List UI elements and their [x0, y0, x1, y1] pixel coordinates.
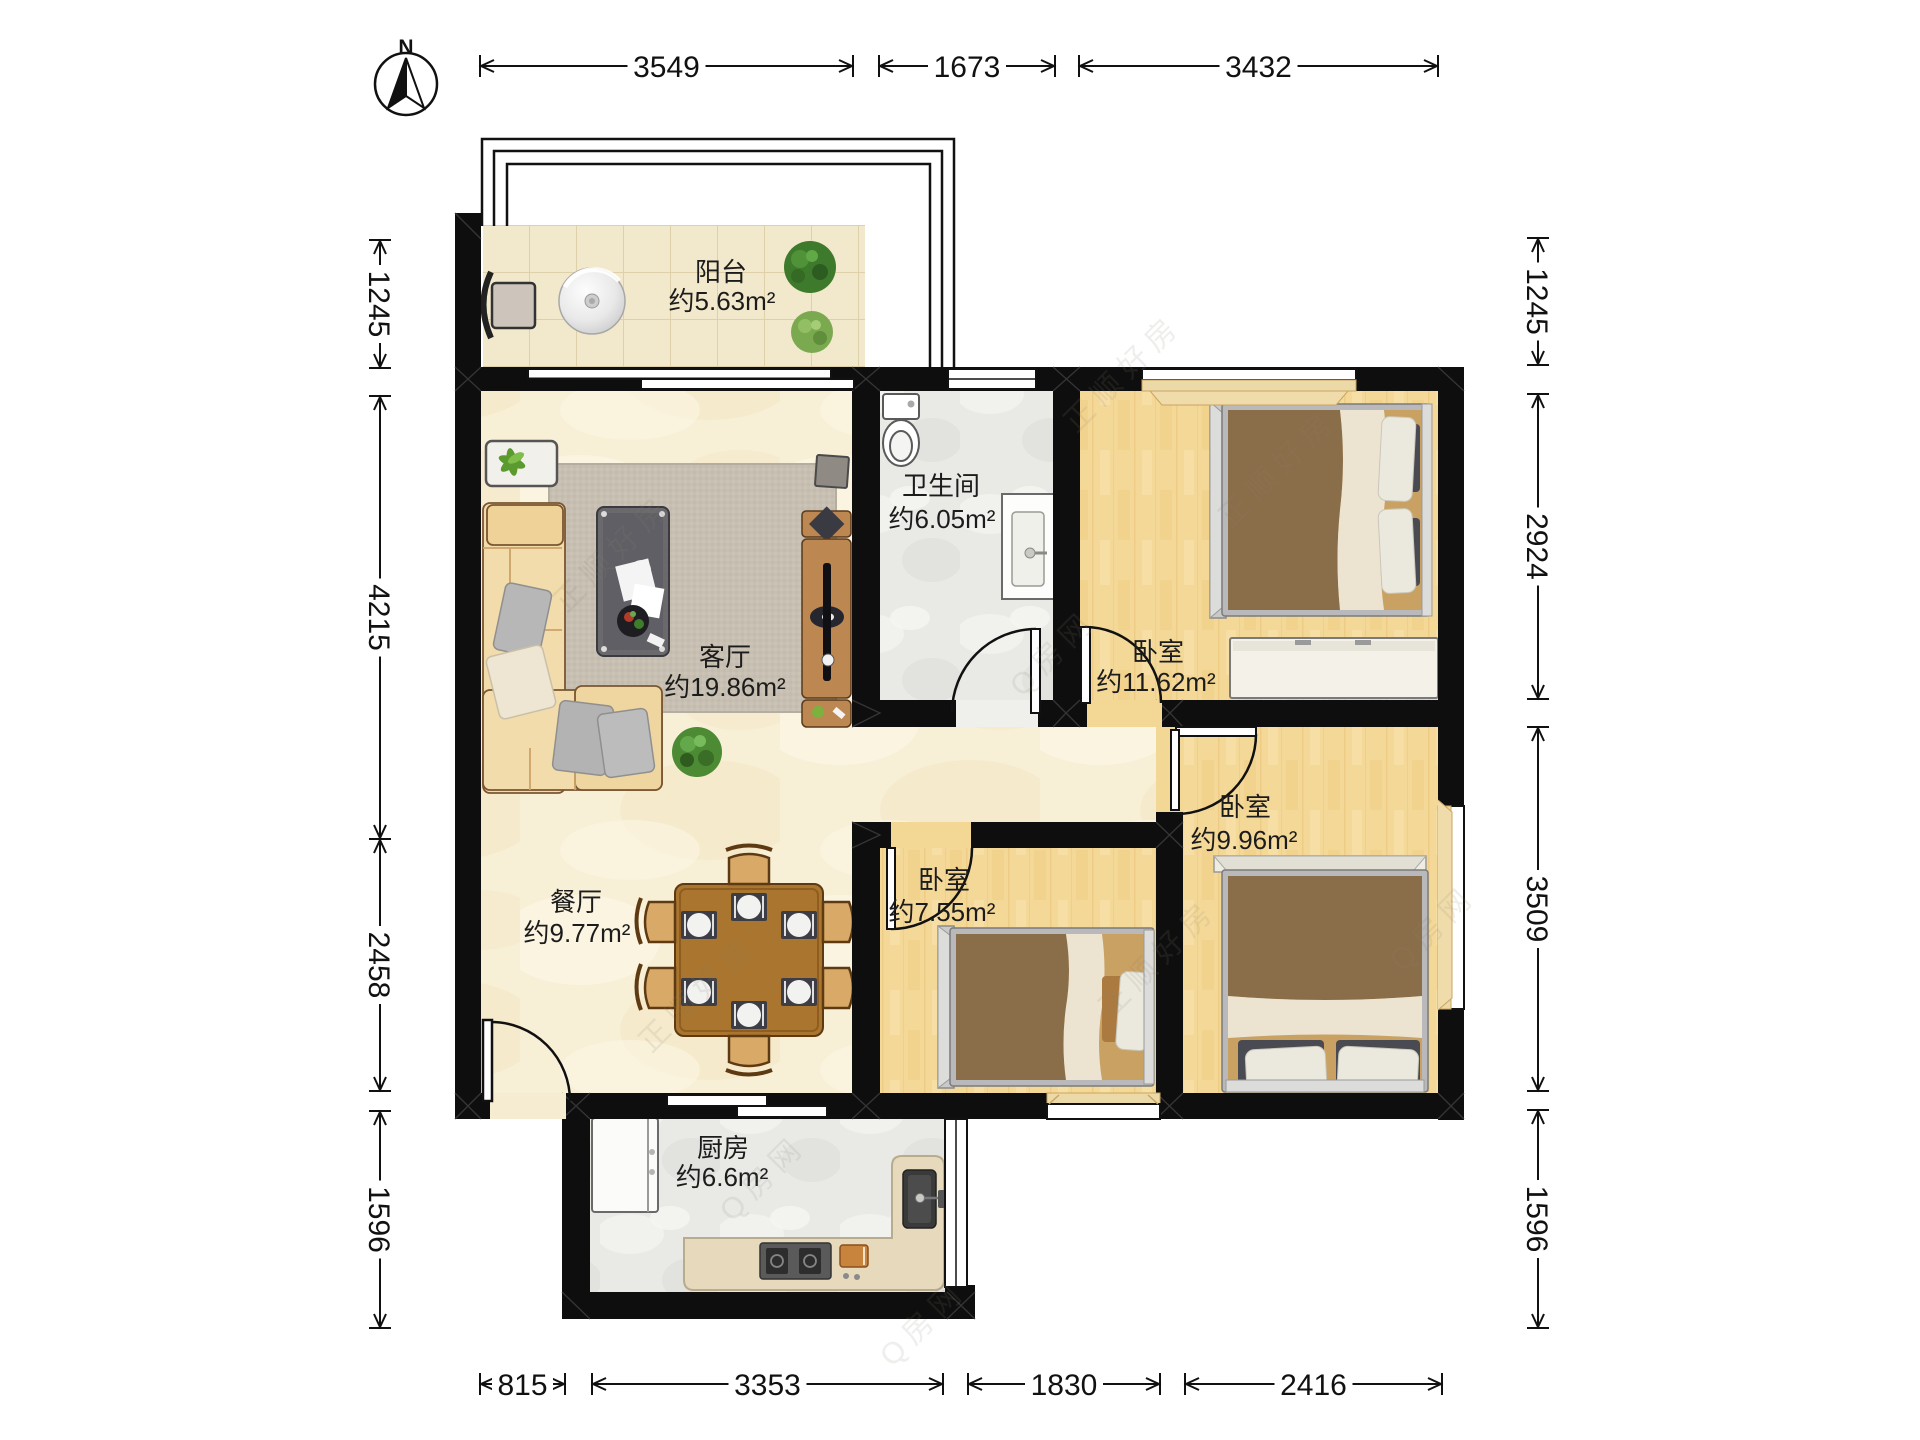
svg-text:厨房: 厨房	[697, 1133, 749, 1163]
svg-text:4215: 4215	[362, 584, 395, 651]
svg-text:客厅: 客厅	[699, 642, 751, 672]
svg-text:2924: 2924	[1520, 513, 1553, 580]
svg-text:约6.05m²: 约6.05m²	[889, 504, 996, 534]
svg-text:3353: 3353	[734, 1369, 801, 1402]
svg-text:1596: 1596	[362, 1186, 395, 1253]
svg-text:卧室: 卧室	[1132, 637, 1184, 667]
svg-text:815: 815	[497, 1369, 547, 1402]
svg-text:2416: 2416	[1280, 1369, 1347, 1402]
svg-text:1830: 1830	[1031, 1369, 1098, 1402]
svg-text:餐厅: 餐厅	[550, 887, 602, 917]
svg-text:约5.63m²: 约5.63m²	[669, 286, 776, 316]
svg-text:1673: 1673	[934, 51, 1001, 84]
svg-text:卫生间: 卫生间	[902, 471, 980, 501]
svg-text:1245: 1245	[362, 271, 395, 338]
svg-text:约19.86m²: 约19.86m²	[664, 672, 786, 702]
svg-text:约9.96m²: 约9.96m²	[1191, 825, 1298, 855]
svg-text:3549: 3549	[633, 51, 700, 84]
svg-text:3432: 3432	[1225, 51, 1292, 84]
svg-text:N: N	[398, 36, 413, 59]
svg-text:约11.62m²: 约11.62m²	[1096, 667, 1216, 697]
svg-text:卧室: 卧室	[1219, 792, 1271, 822]
svg-text:约7.55m²: 约7.55m²	[889, 897, 996, 927]
svg-text:3509: 3509	[1520, 876, 1553, 943]
svg-text:约9.77m²: 约9.77m²	[524, 918, 631, 948]
svg-text:1245: 1245	[1520, 268, 1553, 335]
svg-text:2458: 2458	[362, 932, 395, 999]
svg-text:阳台: 阳台	[695, 257, 747, 287]
svg-text:卧室: 卧室	[918, 865, 970, 895]
svg-text:1596: 1596	[1520, 1186, 1553, 1253]
